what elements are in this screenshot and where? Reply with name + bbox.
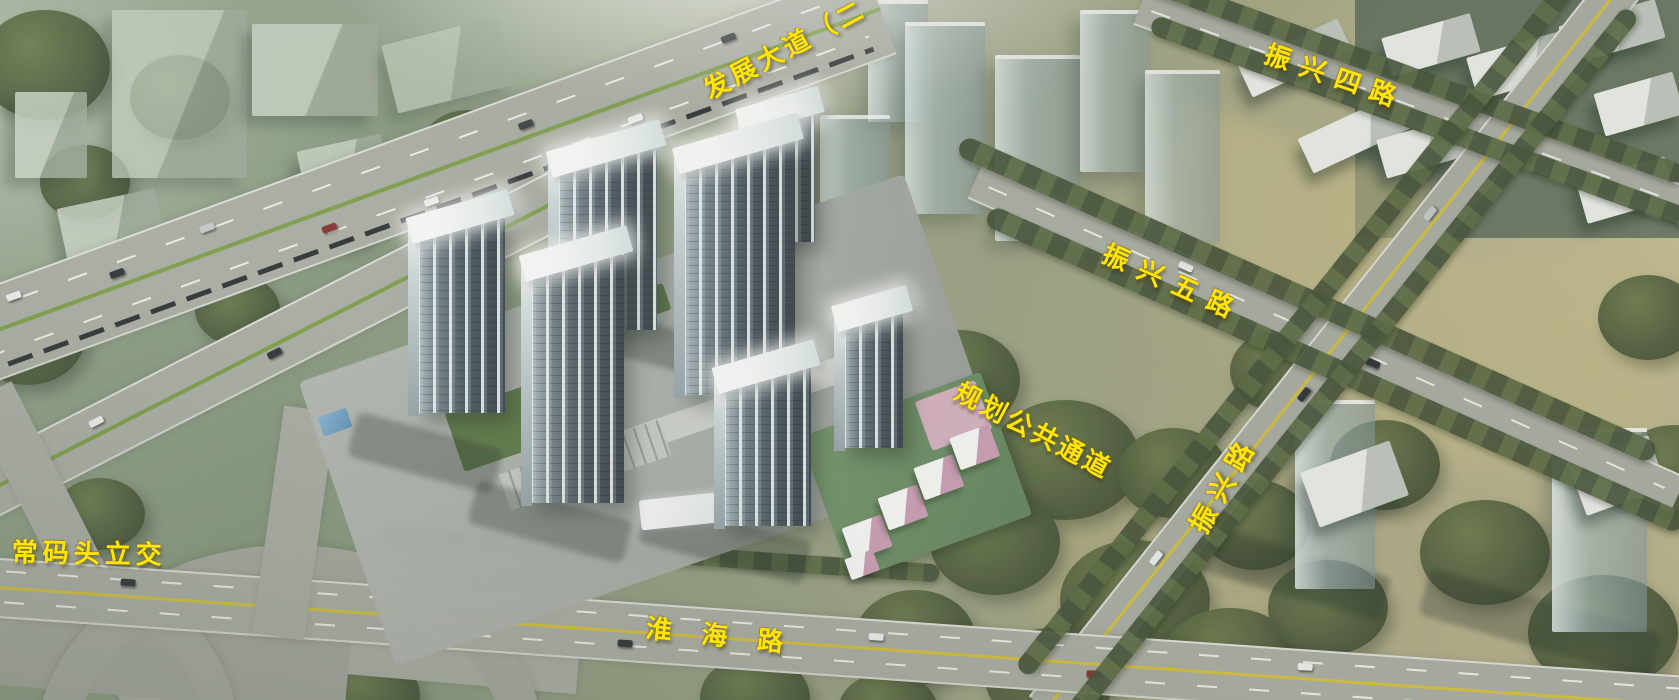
tower-side-face — [674, 149, 685, 398]
residential-tower — [530, 255, 624, 503]
tower-side-face — [714, 372, 725, 529]
car — [199, 222, 215, 234]
car — [518, 119, 534, 131]
city-block-building — [15, 92, 87, 178]
tower-facade — [417, 218, 505, 413]
tower-facade — [843, 310, 903, 448]
city-block-building — [112, 10, 247, 178]
residential-tower — [417, 218, 505, 413]
existing-highrise — [1080, 10, 1150, 172]
tower-facade — [723, 368, 811, 526]
aerial-masterplan-render: 发展大道（二 振兴四路 振兴五路 规划公共通道 振兴路 常码头立交 淮海路 — [0, 0, 1679, 700]
car — [868, 633, 883, 641]
tower-facade — [530, 255, 624, 503]
tower-side-face — [408, 222, 419, 416]
city-block-building — [381, 17, 514, 114]
tower-side-face — [521, 259, 532, 506]
car — [120, 579, 135, 587]
car — [617, 639, 632, 647]
car — [88, 415, 105, 428]
label-changmatou-interchange: 常码头立交 — [11, 532, 167, 572]
tower-side-face — [834, 314, 845, 451]
city-block-building — [252, 24, 378, 116]
car — [720, 32, 736, 44]
residential-tower — [723, 368, 811, 526]
car — [109, 268, 125, 280]
car — [1297, 663, 1312, 671]
existing-highrise — [1145, 70, 1220, 242]
residential-tower — [843, 310, 903, 448]
